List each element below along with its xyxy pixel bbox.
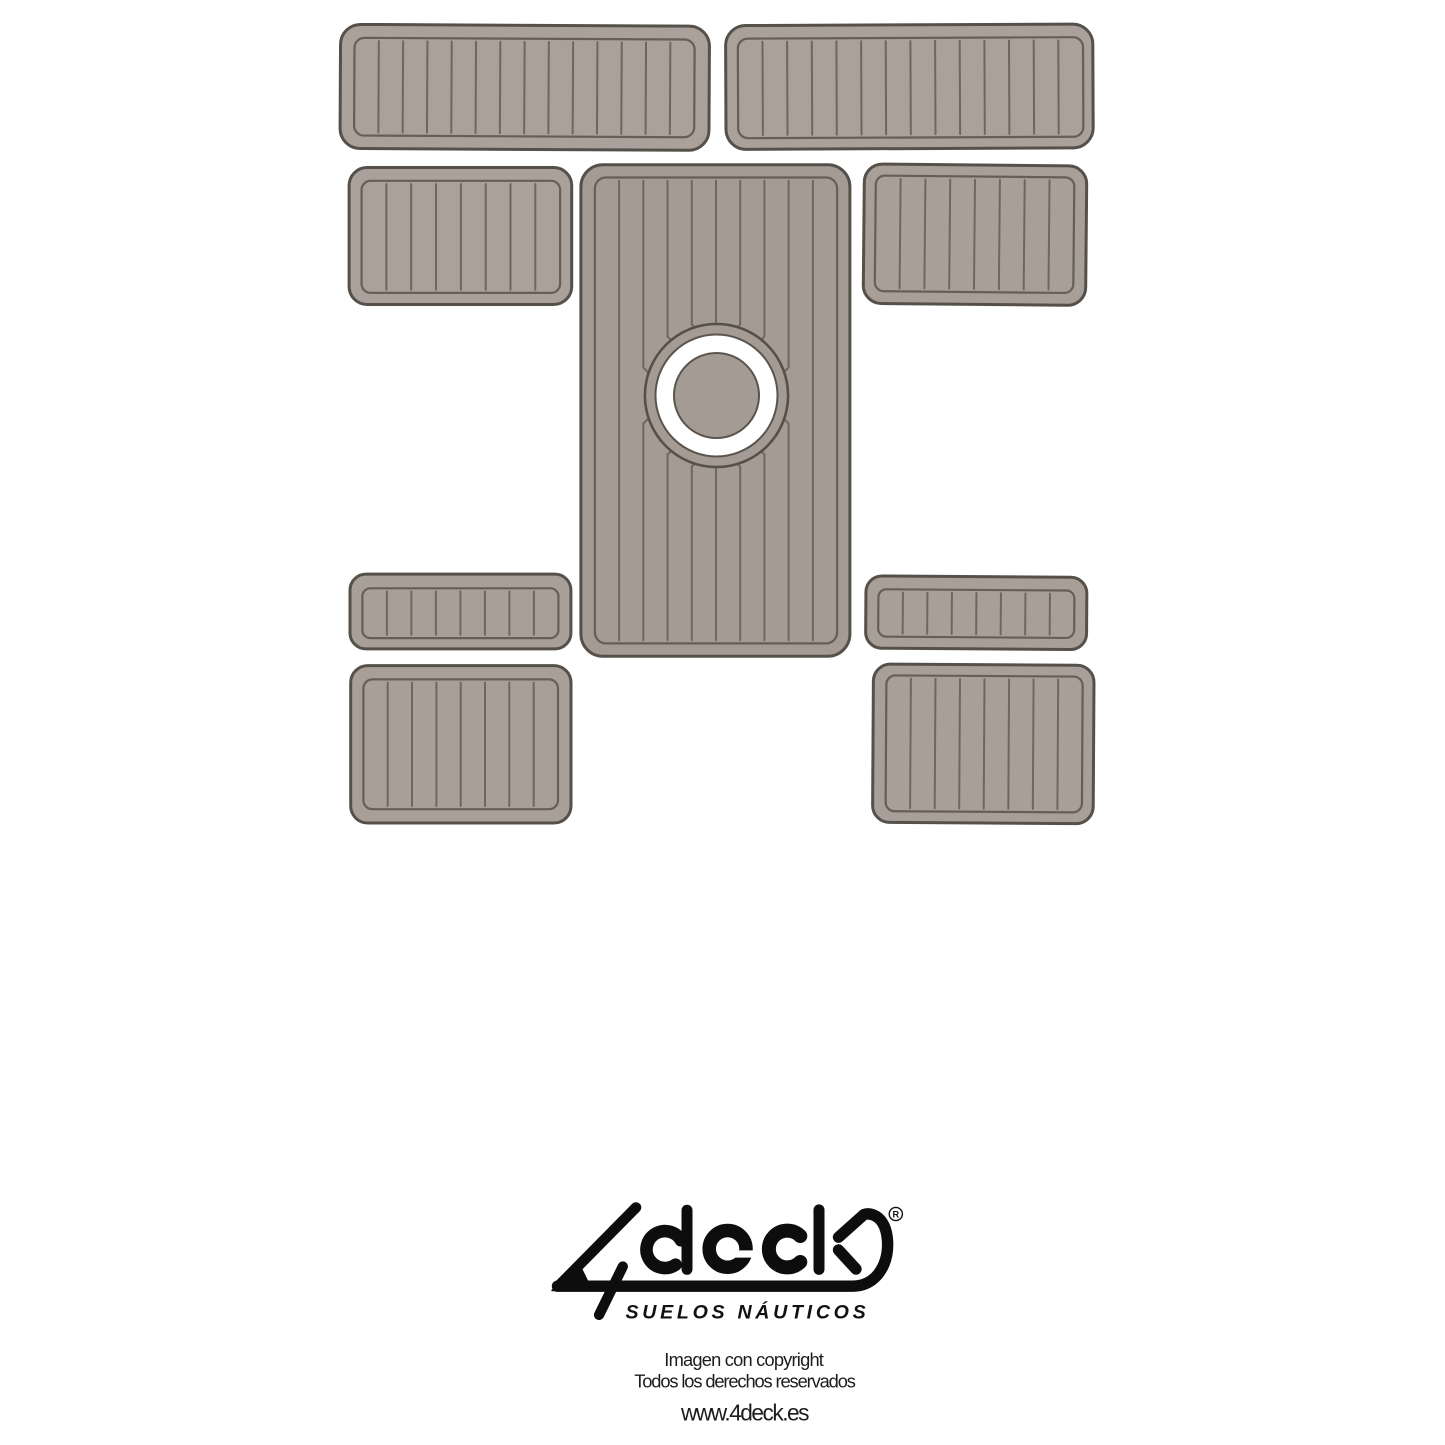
svg-text:Imagen con copyright: Imagen con copyright [664, 1349, 824, 1370]
svg-text:SUELOS NÁUTICOS: SUELOS NÁUTICOS [626, 1301, 870, 1324]
svg-text:Todos los derechos reservados: Todos los derechos reservados [634, 1370, 856, 1391]
svg-text:www.4deck.es: www.4deck.es [680, 1399, 809, 1425]
svg-text:R: R [892, 1210, 899, 1220]
